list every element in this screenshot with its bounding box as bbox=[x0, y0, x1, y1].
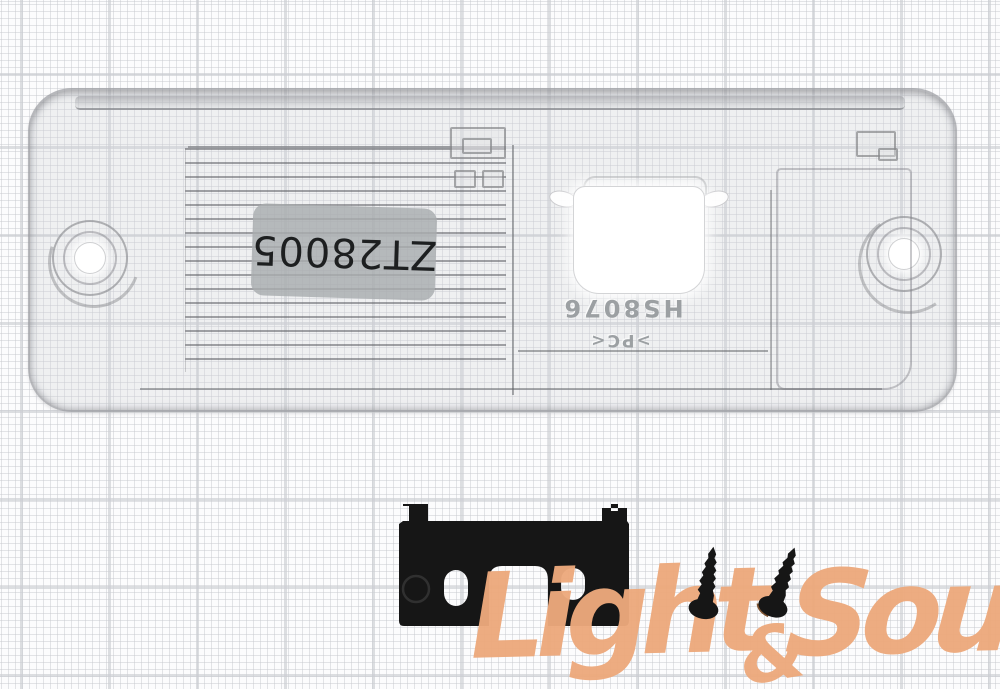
screw-left bbox=[687, 544, 729, 621]
product-photo-scene: HS8076 >PC< ZT28005 Light&Sound bbox=[0, 0, 1000, 689]
screw-right bbox=[755, 543, 809, 622]
screws-graphic bbox=[0, 0, 1000, 689]
